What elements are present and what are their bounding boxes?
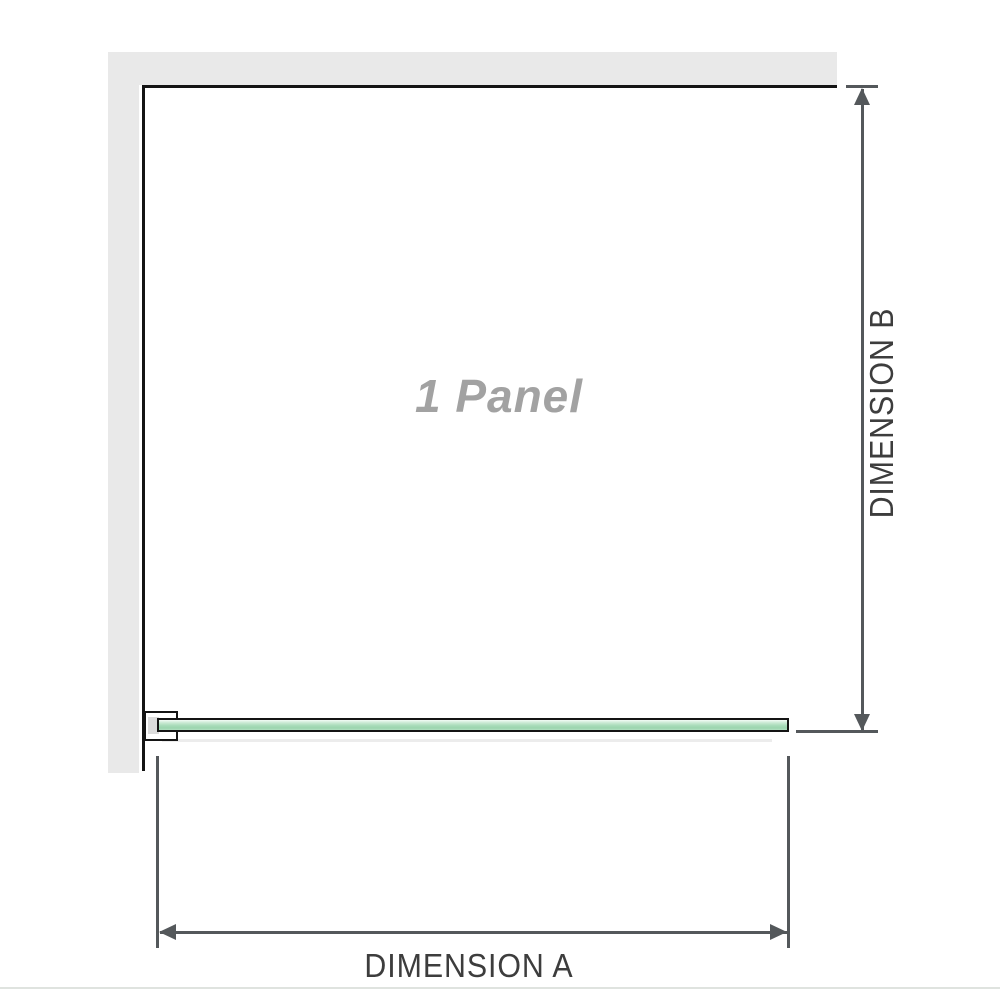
glass-panel-shadow [162, 739, 772, 742]
dimension-a-extension-tick-right [787, 756, 790, 948]
glass-panel [157, 718, 789, 732]
footer-rule [0, 987, 1000, 989]
wall-face-line-left [142, 85, 145, 771]
wall-left [108, 52, 139, 773]
dimension-a-extension-tick-left [156, 756, 159, 948]
panel-count-label: 1 Panel [415, 369, 583, 423]
arrow-left-icon [159, 924, 176, 940]
dimension-a-label: DIMENSION A [364, 947, 573, 985]
arrow-right-icon [770, 924, 787, 940]
arrow-up-icon [854, 88, 870, 105]
dimension-b-label: DIMENSION B [863, 308, 901, 519]
arrow-down-icon [854, 714, 870, 731]
dimension-a-line [160, 931, 787, 934]
wall-top [108, 52, 837, 85]
wall-face-line-top [142, 85, 837, 88]
panel-configuration-diagram: 1 Panel DIMENSION B DIMENSION A [0, 0, 1000, 1000]
